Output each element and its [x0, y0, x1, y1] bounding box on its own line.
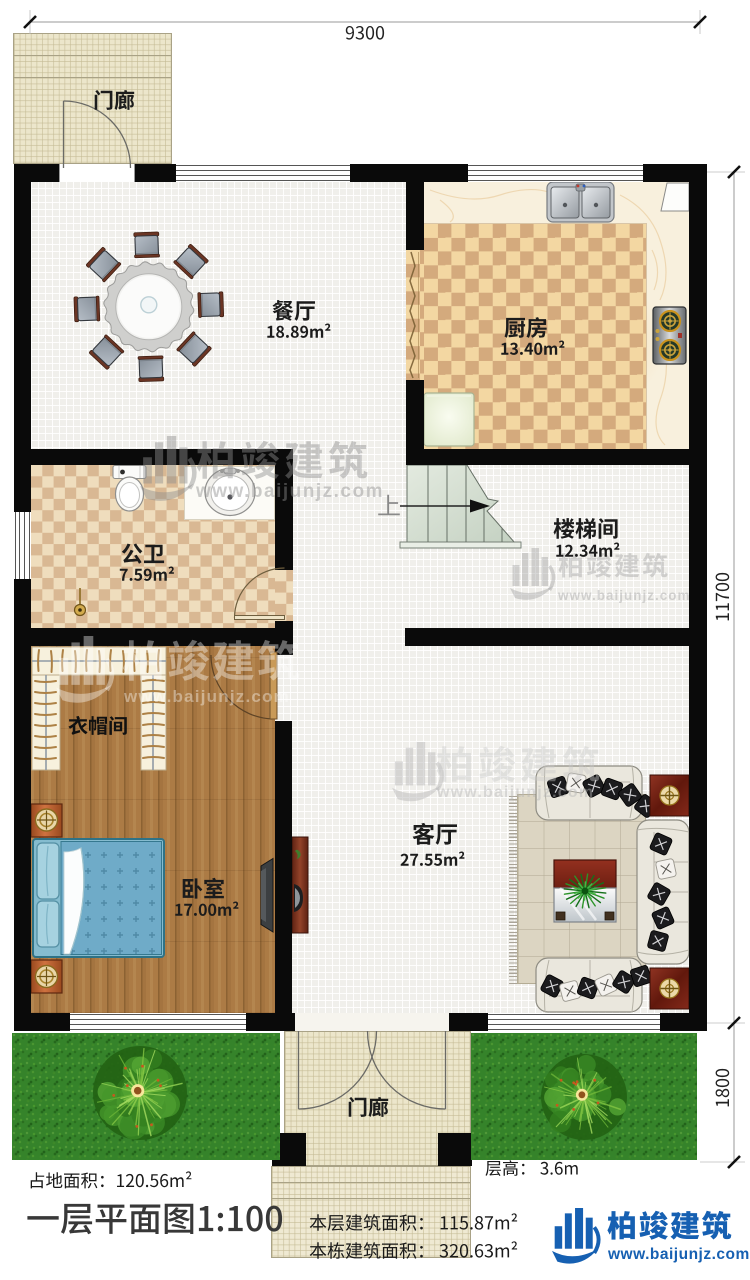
svg-text:www.baijunjz.com: www.baijunjz.com — [607, 1246, 750, 1263]
svg-text:www.baijunjz.com: www.baijunjz.com — [195, 481, 384, 502]
svg-text:www.baijunjz.com: www.baijunjz.com — [557, 588, 691, 603]
svg-text:www.baijunjz.com: www.baijunjz.com — [123, 687, 290, 706]
svg-text:www.baijunjz.com: www.baijunjz.com — [436, 784, 594, 801]
